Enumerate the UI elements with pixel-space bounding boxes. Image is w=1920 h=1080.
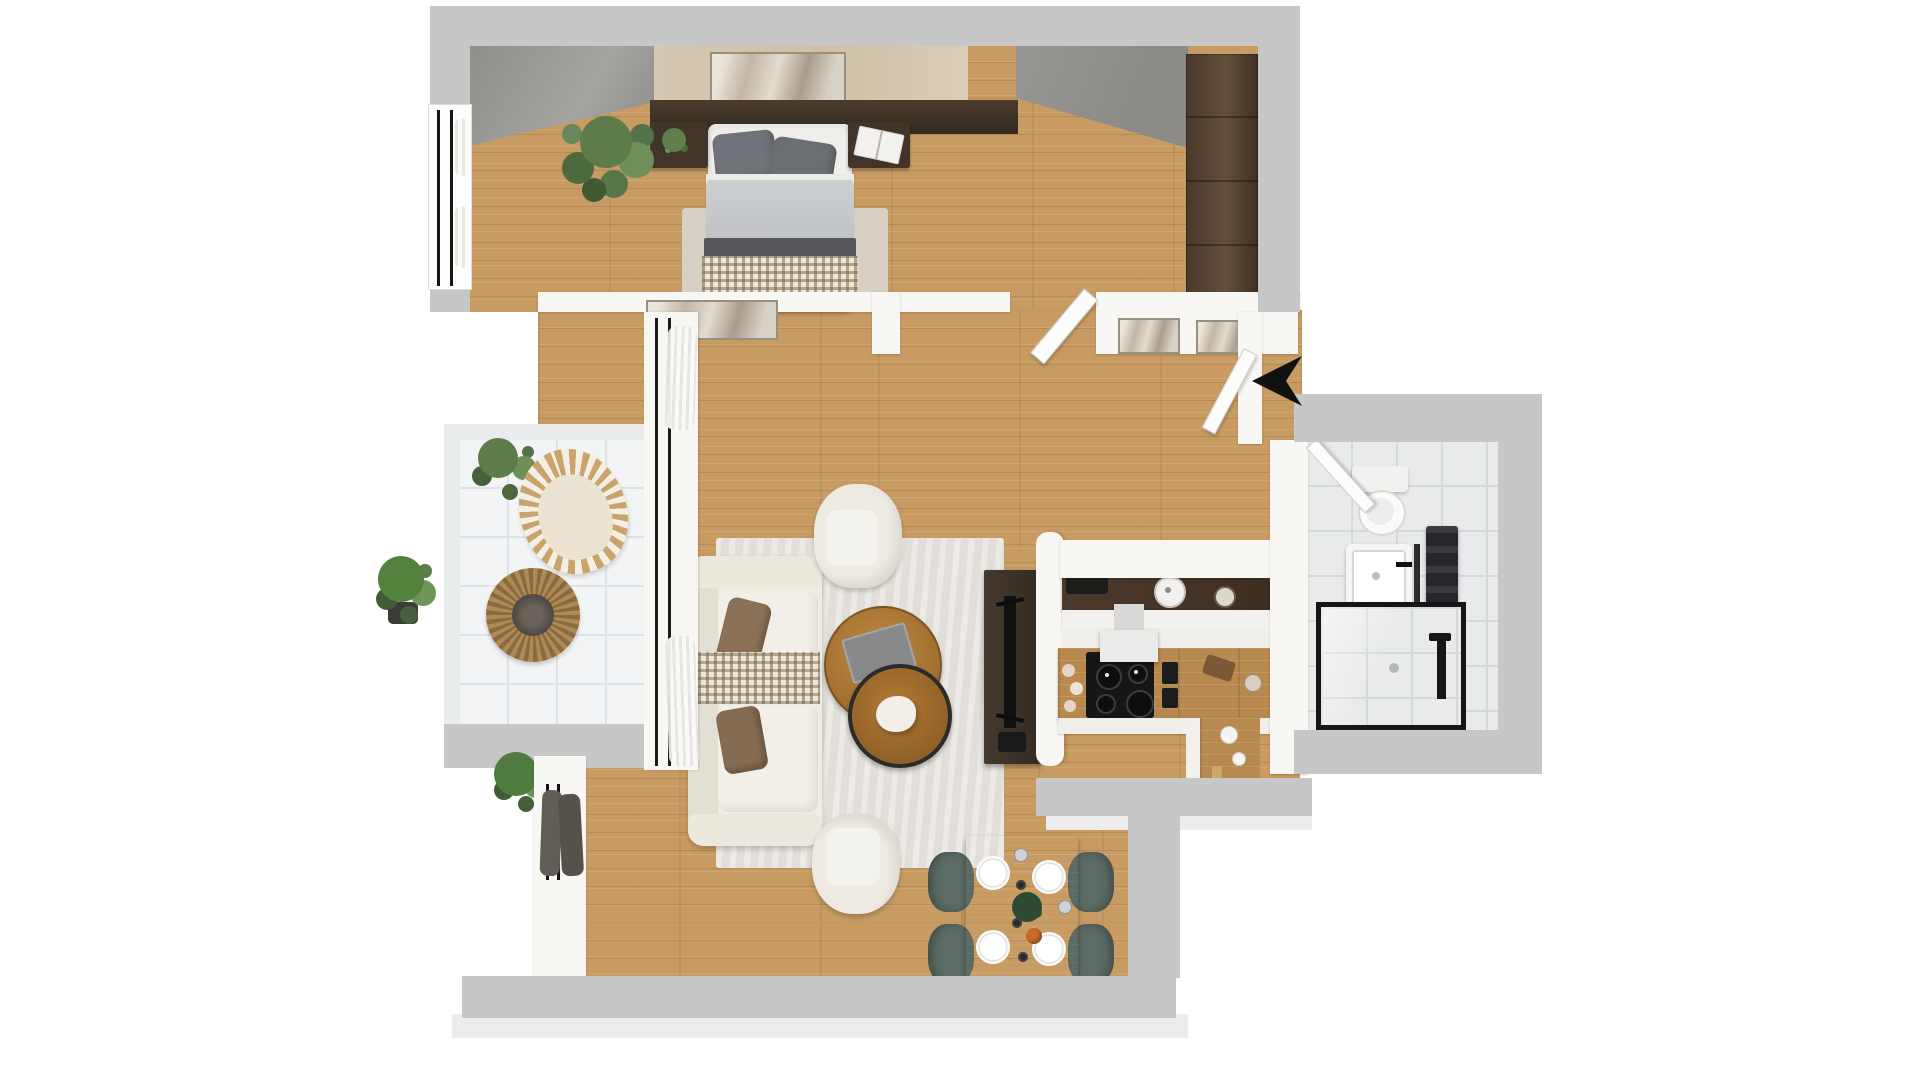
kitchen-candle-1 — [1220, 726, 1238, 744]
balcony-parapet-left — [444, 424, 460, 726]
outer-wall-east-connector — [1128, 812, 1180, 978]
bedroom-window-rail-2 — [450, 110, 453, 286]
dining-centerpiece-plant — [1012, 892, 1042, 922]
nightstand-plant — [662, 128, 686, 152]
living-floor-plant — [494, 752, 538, 796]
orange-fruit — [1026, 928, 1042, 944]
north-arrow-icon — [1248, 352, 1306, 410]
book-spine — [875, 130, 883, 160]
outer-wall-south-bathroom — [1294, 730, 1542, 774]
armchair-south-cushion — [826, 828, 880, 886]
window-rail-1 — [655, 318, 658, 766]
wall-stub — [872, 292, 900, 354]
garlic-1 — [1062, 664, 1075, 677]
outer-wall-east-bedroom — [1258, 6, 1300, 312]
outer-wall-south-kitchen — [1036, 778, 1312, 816]
armchair-south — [812, 814, 900, 914]
soundbar — [998, 732, 1026, 752]
sink-faucet — [1396, 562, 1412, 567]
sofa-armrest-bottom — [688, 814, 822, 846]
outdoor-plant — [378, 556, 424, 602]
wardrobe-seams — [1186, 54, 1258, 312]
sofa-armrest-top — [688, 556, 822, 588]
burner-2 — [1128, 664, 1148, 684]
mug — [1214, 586, 1236, 608]
garlic-2 — [1070, 682, 1083, 695]
bedroom-curtain-2 — [455, 206, 469, 268]
wine-glass-1 — [1014, 848, 1028, 862]
kitchen-aisle — [1062, 628, 1288, 650]
spice-grinder-1 — [1162, 662, 1178, 684]
walk-in-shower — [1316, 602, 1466, 730]
curtain-south — [665, 636, 700, 767]
rattan-table-top — [512, 594, 554, 636]
curtain-north — [664, 326, 698, 431]
outer-wall-south-living — [462, 976, 1176, 1018]
burner-3 — [1096, 694, 1116, 714]
plant-pot — [388, 602, 418, 624]
candle-1 — [1016, 880, 1026, 890]
tv-panel — [1004, 596, 1016, 728]
kitchen-cabinet-front — [1062, 610, 1288, 628]
burner-4 — [1126, 690, 1154, 718]
burner-dot-1 — [1105, 673, 1109, 677]
shower-drain — [1389, 663, 1399, 673]
floor-plan — [0, 0, 1920, 1080]
sink-drain — [1372, 572, 1380, 580]
shower-head — [1429, 633, 1451, 641]
bed-duvet — [706, 180, 854, 244]
kettle — [1154, 576, 1186, 608]
outer-wall-east-bathroom — [1498, 426, 1542, 774]
spice-grinder-2 — [1162, 688, 1178, 708]
kettle-lid — [1165, 587, 1171, 593]
bathroom-west-wall — [1270, 440, 1308, 774]
sofa — [688, 556, 822, 846]
bedroom-window-rail-1 — [437, 110, 440, 286]
wardrobe — [1186, 54, 1258, 312]
outer-wall-north — [430, 6, 1300, 46]
towel-bar — [1414, 544, 1420, 608]
hallway-art-1 — [1118, 318, 1180, 354]
kitchen-bowl — [1244, 674, 1262, 692]
balcony-parapet-top — [444, 424, 662, 440]
wine-glass-2 — [1058, 900, 1072, 914]
bedroom-wall-art — [710, 52, 846, 102]
bedroom-curtain-1 — [455, 118, 469, 176]
sofa-checkered-blanket — [690, 652, 820, 704]
garlic-3 — [1064, 700, 1076, 712]
dinner-plate-3 — [976, 930, 1010, 964]
shower-column — [1437, 641, 1446, 699]
burner-dot-2 — [1134, 670, 1138, 674]
sw-curtain-2 — [558, 793, 584, 876]
fur-decor — [876, 696, 916, 732]
kitchen-candle-2 — [1232, 752, 1246, 766]
round-rattan-table — [486, 568, 580, 662]
armchair-north — [814, 484, 902, 588]
armchair-north-cushion — [826, 510, 878, 566]
hallway-south-wall — [1060, 540, 1300, 578]
range-hood — [1100, 630, 1158, 662]
candle-3 — [1018, 952, 1028, 962]
bedroom-tall-plant — [580, 116, 632, 168]
burner-1 — [1096, 664, 1122, 690]
dinner-plate-1 — [976, 856, 1010, 890]
dinner-plate-2 — [1032, 860, 1066, 894]
